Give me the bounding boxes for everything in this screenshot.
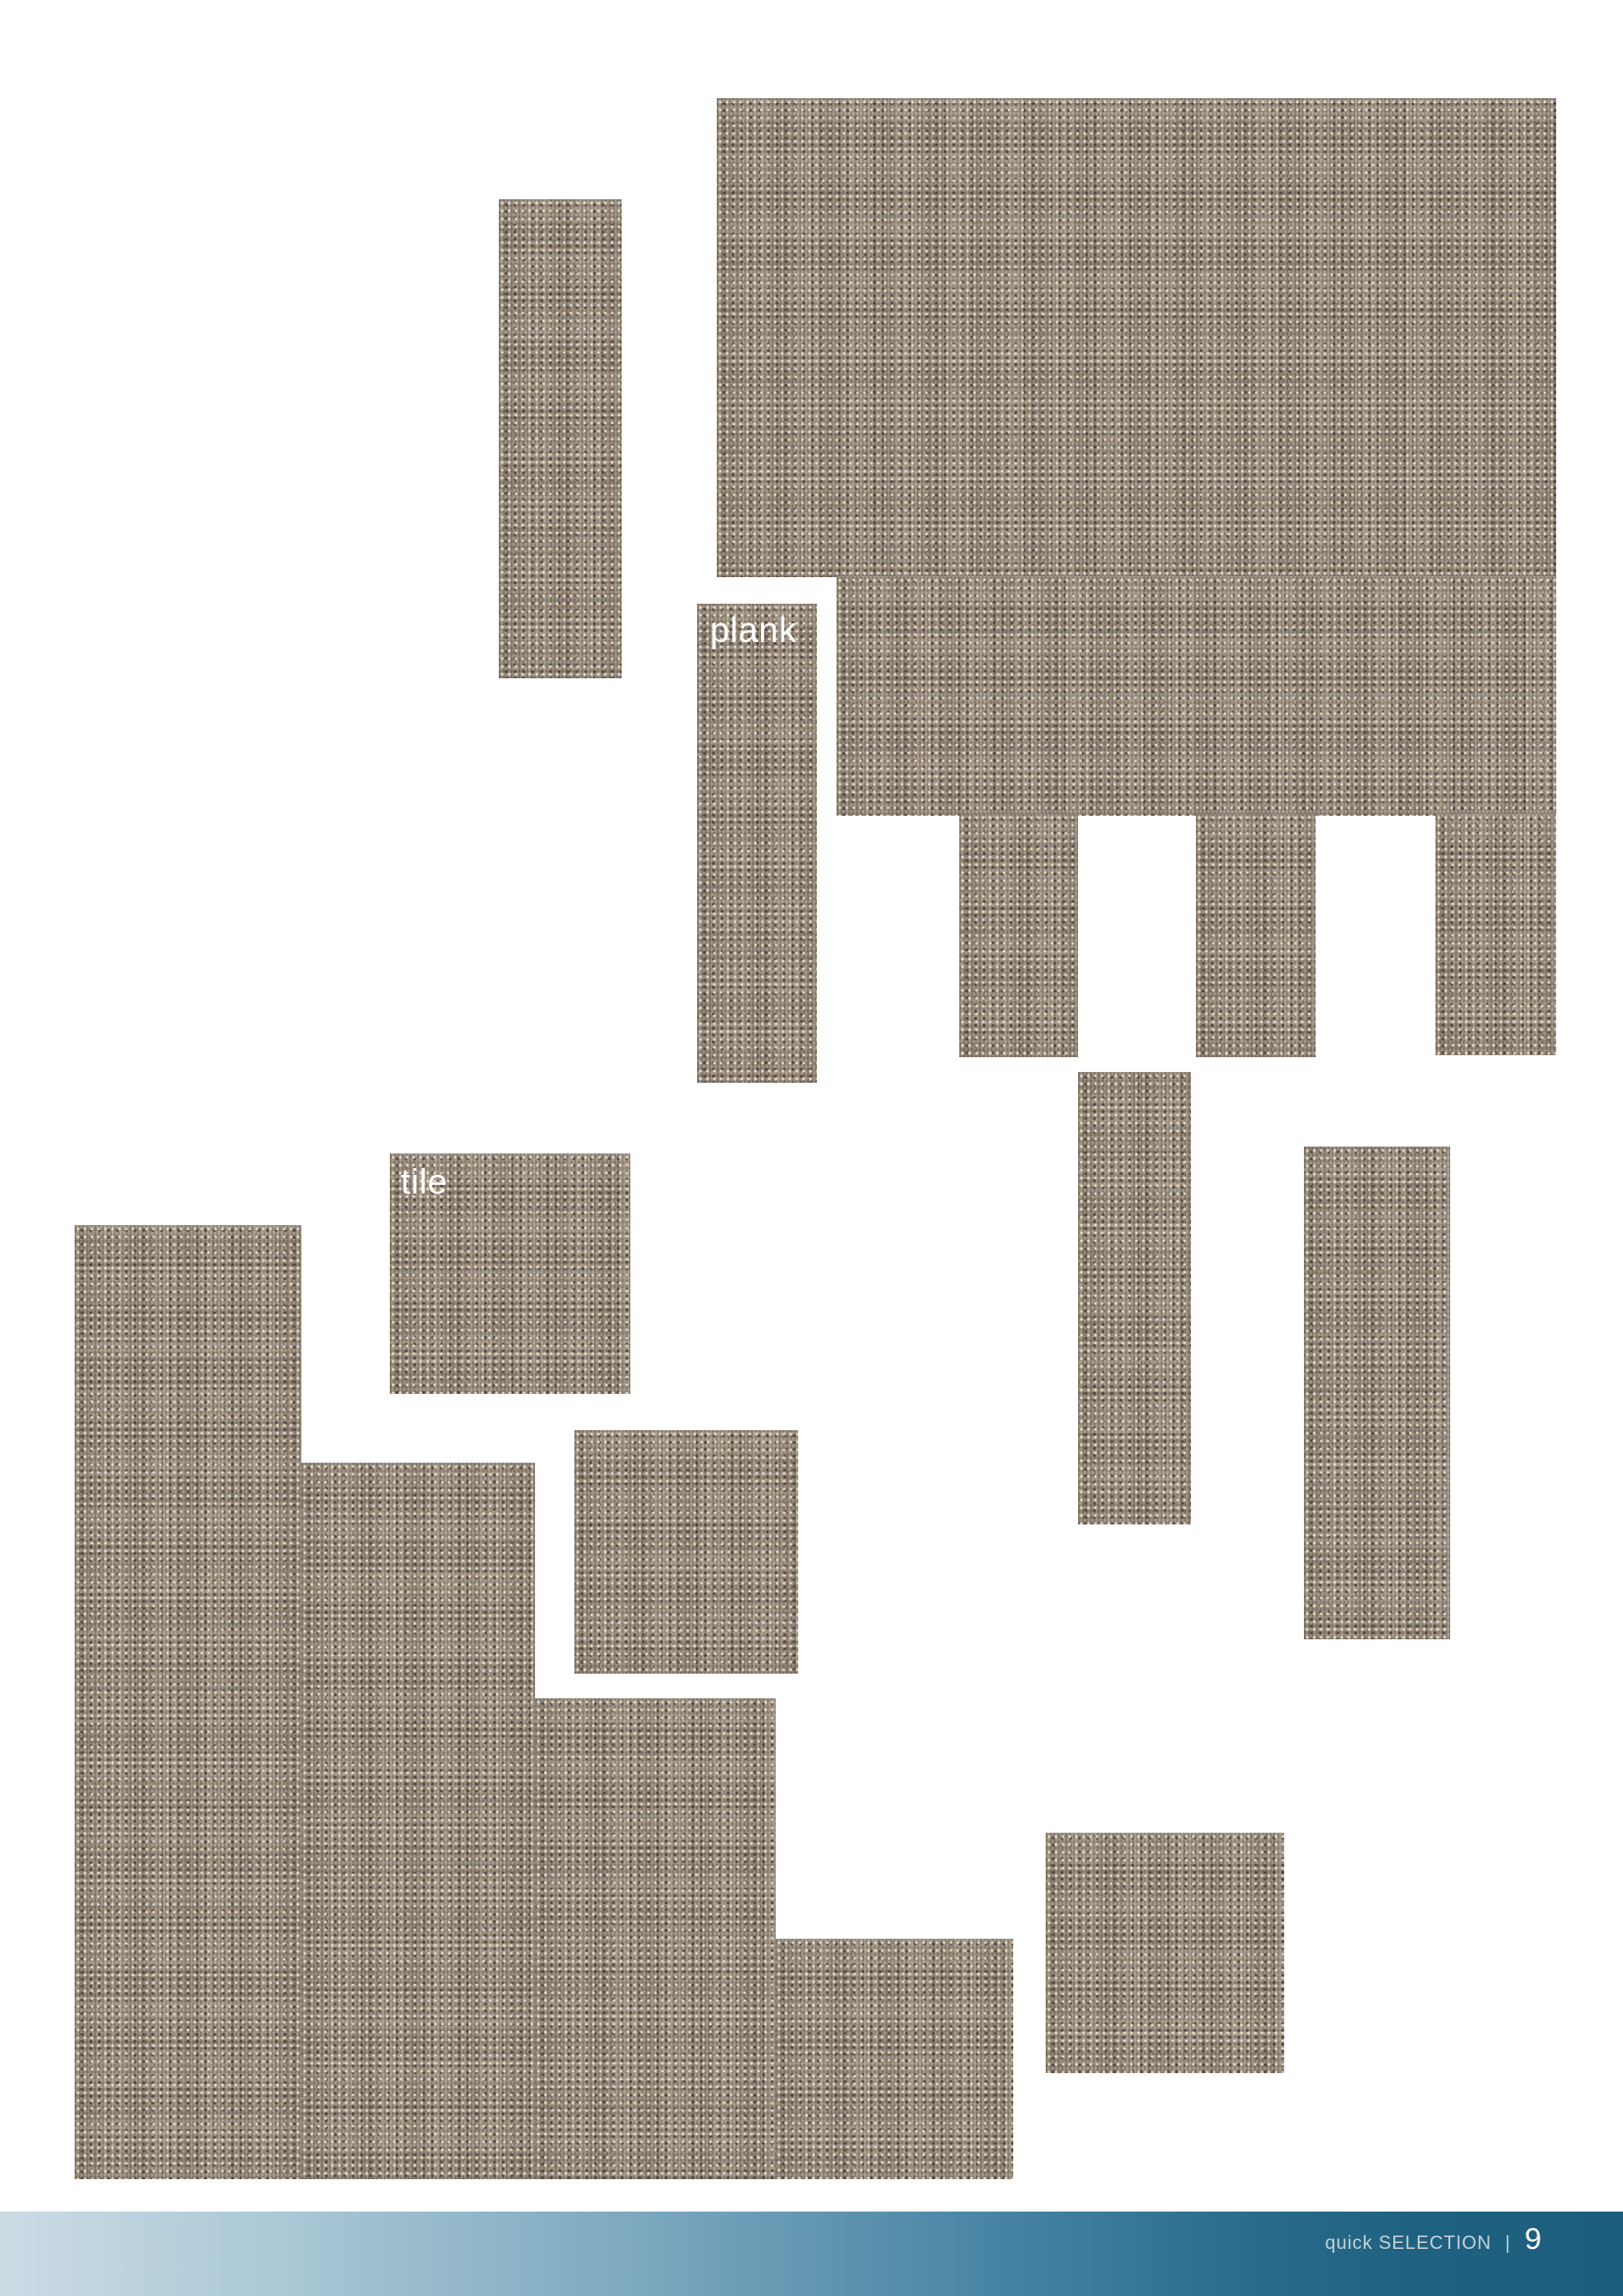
tile-swatch-labeled-label: tile [401,1163,448,1201]
tile-swatch-3 [1046,1833,1284,2073]
tile-stair-col-2 [301,1463,535,2179]
footer-text: quick SELECTION | 9 [1325,2221,1542,2257]
plank-field-strip-1 [959,814,1078,1057]
plank-field-strip-2 [1196,814,1316,1057]
catalog-page: planktile quick SELECTION | 9 [0,0,1623,2296]
tile-stair-col-4 [776,1939,1013,2179]
plank-field-top [717,98,1556,577]
tile-stair-col-1 [75,1225,301,2179]
plank-swatch-labeled: plank [697,604,817,1083]
tile-swatch-2 [574,1430,798,1674]
tile-swatch-labeled: tile [390,1153,630,1394]
plank-swatch-1 [499,199,622,678]
footer-section-label: quick SELECTION [1325,2233,1491,2255]
plank-swatch-4 [1304,1147,1450,1639]
plank-swatch-3 [1078,1072,1191,1524]
tile-stair-col-3 [535,1698,776,2179]
footer-page-number: 9 [1525,2221,1542,2257]
footer-bar: quick SELECTION | 9 [0,2212,1623,2296]
plank-field-lower [837,576,1556,816]
footer-separator: | [1505,2233,1511,2255]
plank-field-strip-3 [1435,814,1556,1055]
plank-swatch-labeled-label: plank [710,612,797,649]
